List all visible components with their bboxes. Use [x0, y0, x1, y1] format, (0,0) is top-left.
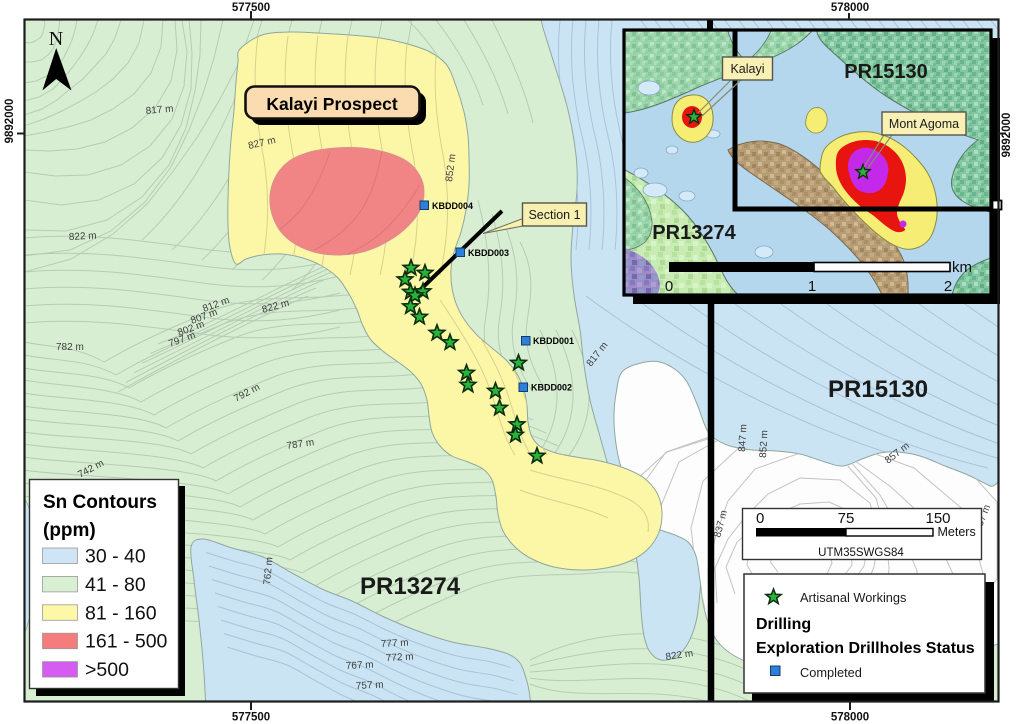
svg-text:0: 0	[665, 278, 673, 295]
svg-text:1: 1	[808, 278, 816, 295]
svg-text:777 m: 777 m	[381, 638, 409, 650]
svg-text:Mont Agoma: Mont Agoma	[889, 117, 959, 131]
svg-text:Drilling: Drilling	[756, 616, 811, 633]
svg-text:767 m: 767 m	[346, 660, 374, 672]
svg-text:Artisanal Workings: Artisanal Workings	[800, 590, 906, 605]
svg-text:772 m: 772 m	[386, 652, 414, 664]
svg-text:KBDD003: KBDD003	[468, 248, 509, 258]
svg-text:Kalayi Prospect: Kalayi Prospect	[266, 94, 397, 114]
svg-text:(ppm): (ppm)	[43, 520, 96, 541]
svg-text:0: 0	[756, 510, 764, 527]
svg-text:30 - 40: 30 - 40	[85, 546, 146, 568]
svg-text:847 m: 847 m	[737, 424, 749, 452]
svg-text:Exploration Drillholes Status: Exploration Drillholes Status	[756, 640, 975, 657]
svg-text:75: 75	[838, 510, 855, 527]
svg-text:KBDD001: KBDD001	[533, 336, 574, 346]
svg-text:782 m: 782 m	[56, 342, 84, 353]
svg-text:>500: >500	[85, 659, 129, 681]
svg-text:PR13274: PR13274	[652, 222, 736, 244]
svg-text:161 - 500: 161 - 500	[85, 631, 168, 653]
svg-text:Section 1: Section 1	[528, 208, 580, 222]
svg-text:PR15130: PR15130	[844, 61, 927, 83]
svg-text:2: 2	[944, 278, 952, 295]
svg-text:41 - 80: 41 - 80	[85, 574, 146, 596]
svg-text:577500: 577500	[232, 712, 270, 724]
svg-text:81 - 160: 81 - 160	[85, 602, 157, 624]
svg-text:km: km	[952, 259, 972, 276]
svg-text:9892000: 9892000	[1001, 113, 1013, 158]
svg-text:578000: 578000	[831, 712, 869, 724]
svg-text:822 m: 822 m	[69, 231, 97, 243]
svg-text:N: N	[49, 28, 63, 50]
svg-text:PR15130: PR15130	[828, 376, 928, 403]
svg-text:Completed: Completed	[800, 665, 862, 680]
svg-text:Sn Contours: Sn Contours	[43, 492, 157, 513]
svg-text:Kalayi: Kalayi	[730, 62, 764, 76]
svg-text:578000: 578000	[831, 2, 869, 14]
svg-text:Meters: Meters	[938, 525, 976, 539]
svg-text:852 m: 852 m	[758, 430, 770, 458]
svg-text:577500: 577500	[232, 2, 270, 14]
svg-text:UTM35SWGS84: UTM35SWGS84	[818, 547, 904, 559]
svg-text:KBDD002: KBDD002	[531, 383, 572, 393]
svg-text:9892000: 9892000	[4, 99, 16, 144]
svg-text:KBDD004: KBDD004	[432, 201, 473, 211]
svg-text:757 m: 757 m	[356, 680, 384, 692]
svg-text:PR13274: PR13274	[360, 573, 461, 600]
